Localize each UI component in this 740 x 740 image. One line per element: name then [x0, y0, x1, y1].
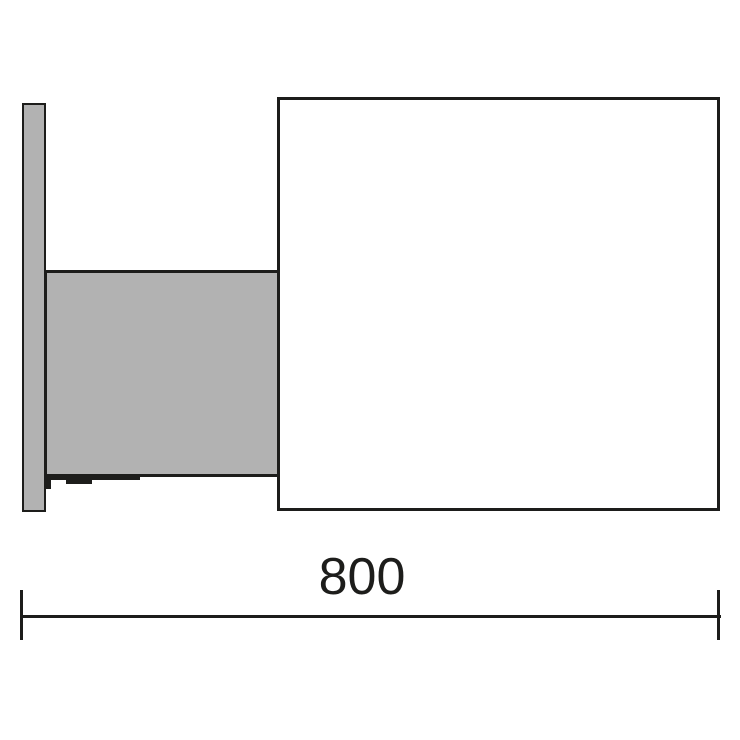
drawer-body [44, 270, 280, 477]
dimension-tick-left [20, 590, 23, 640]
technical-drawing-canvas: 800 [0, 0, 740, 740]
drawer-slide-rail [48, 475, 140, 480]
drawer-front-panel [22, 103, 46, 512]
drawer-slide-notch [66, 475, 92, 484]
dimension-tick-right [717, 590, 720, 640]
dimension-line [21, 615, 721, 618]
dimension-label: 800 [319, 551, 406, 603]
cabinet-outline [277, 97, 720, 511]
